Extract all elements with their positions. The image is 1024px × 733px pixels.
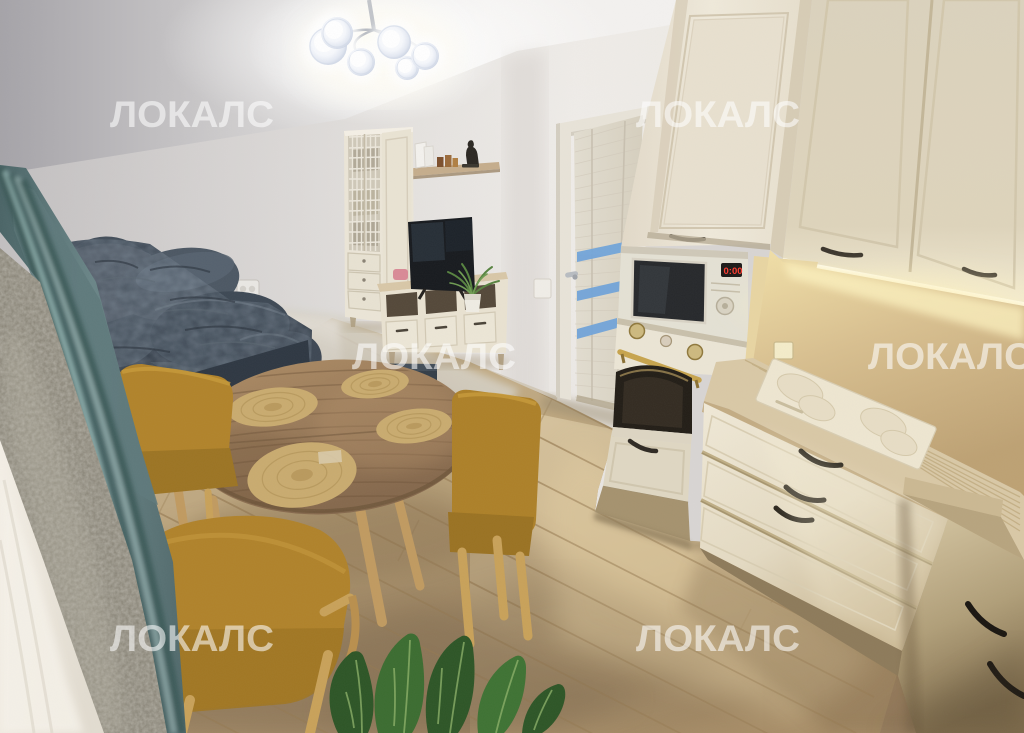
svg-text:ЛОКАЛС: ЛОКАЛС xyxy=(636,618,800,659)
svg-text:ЛОКАЛС: ЛОКАЛС xyxy=(110,94,274,135)
svg-text:ЛОКАЛС: ЛОКАЛС xyxy=(868,336,1024,377)
svg-text:ЛОКАЛС: ЛОКАЛС xyxy=(352,336,516,377)
svg-text:ЛОКАЛС: ЛОКАЛС xyxy=(110,618,274,659)
svg-text:ЛОКАЛС: ЛОКАЛС xyxy=(636,94,800,135)
